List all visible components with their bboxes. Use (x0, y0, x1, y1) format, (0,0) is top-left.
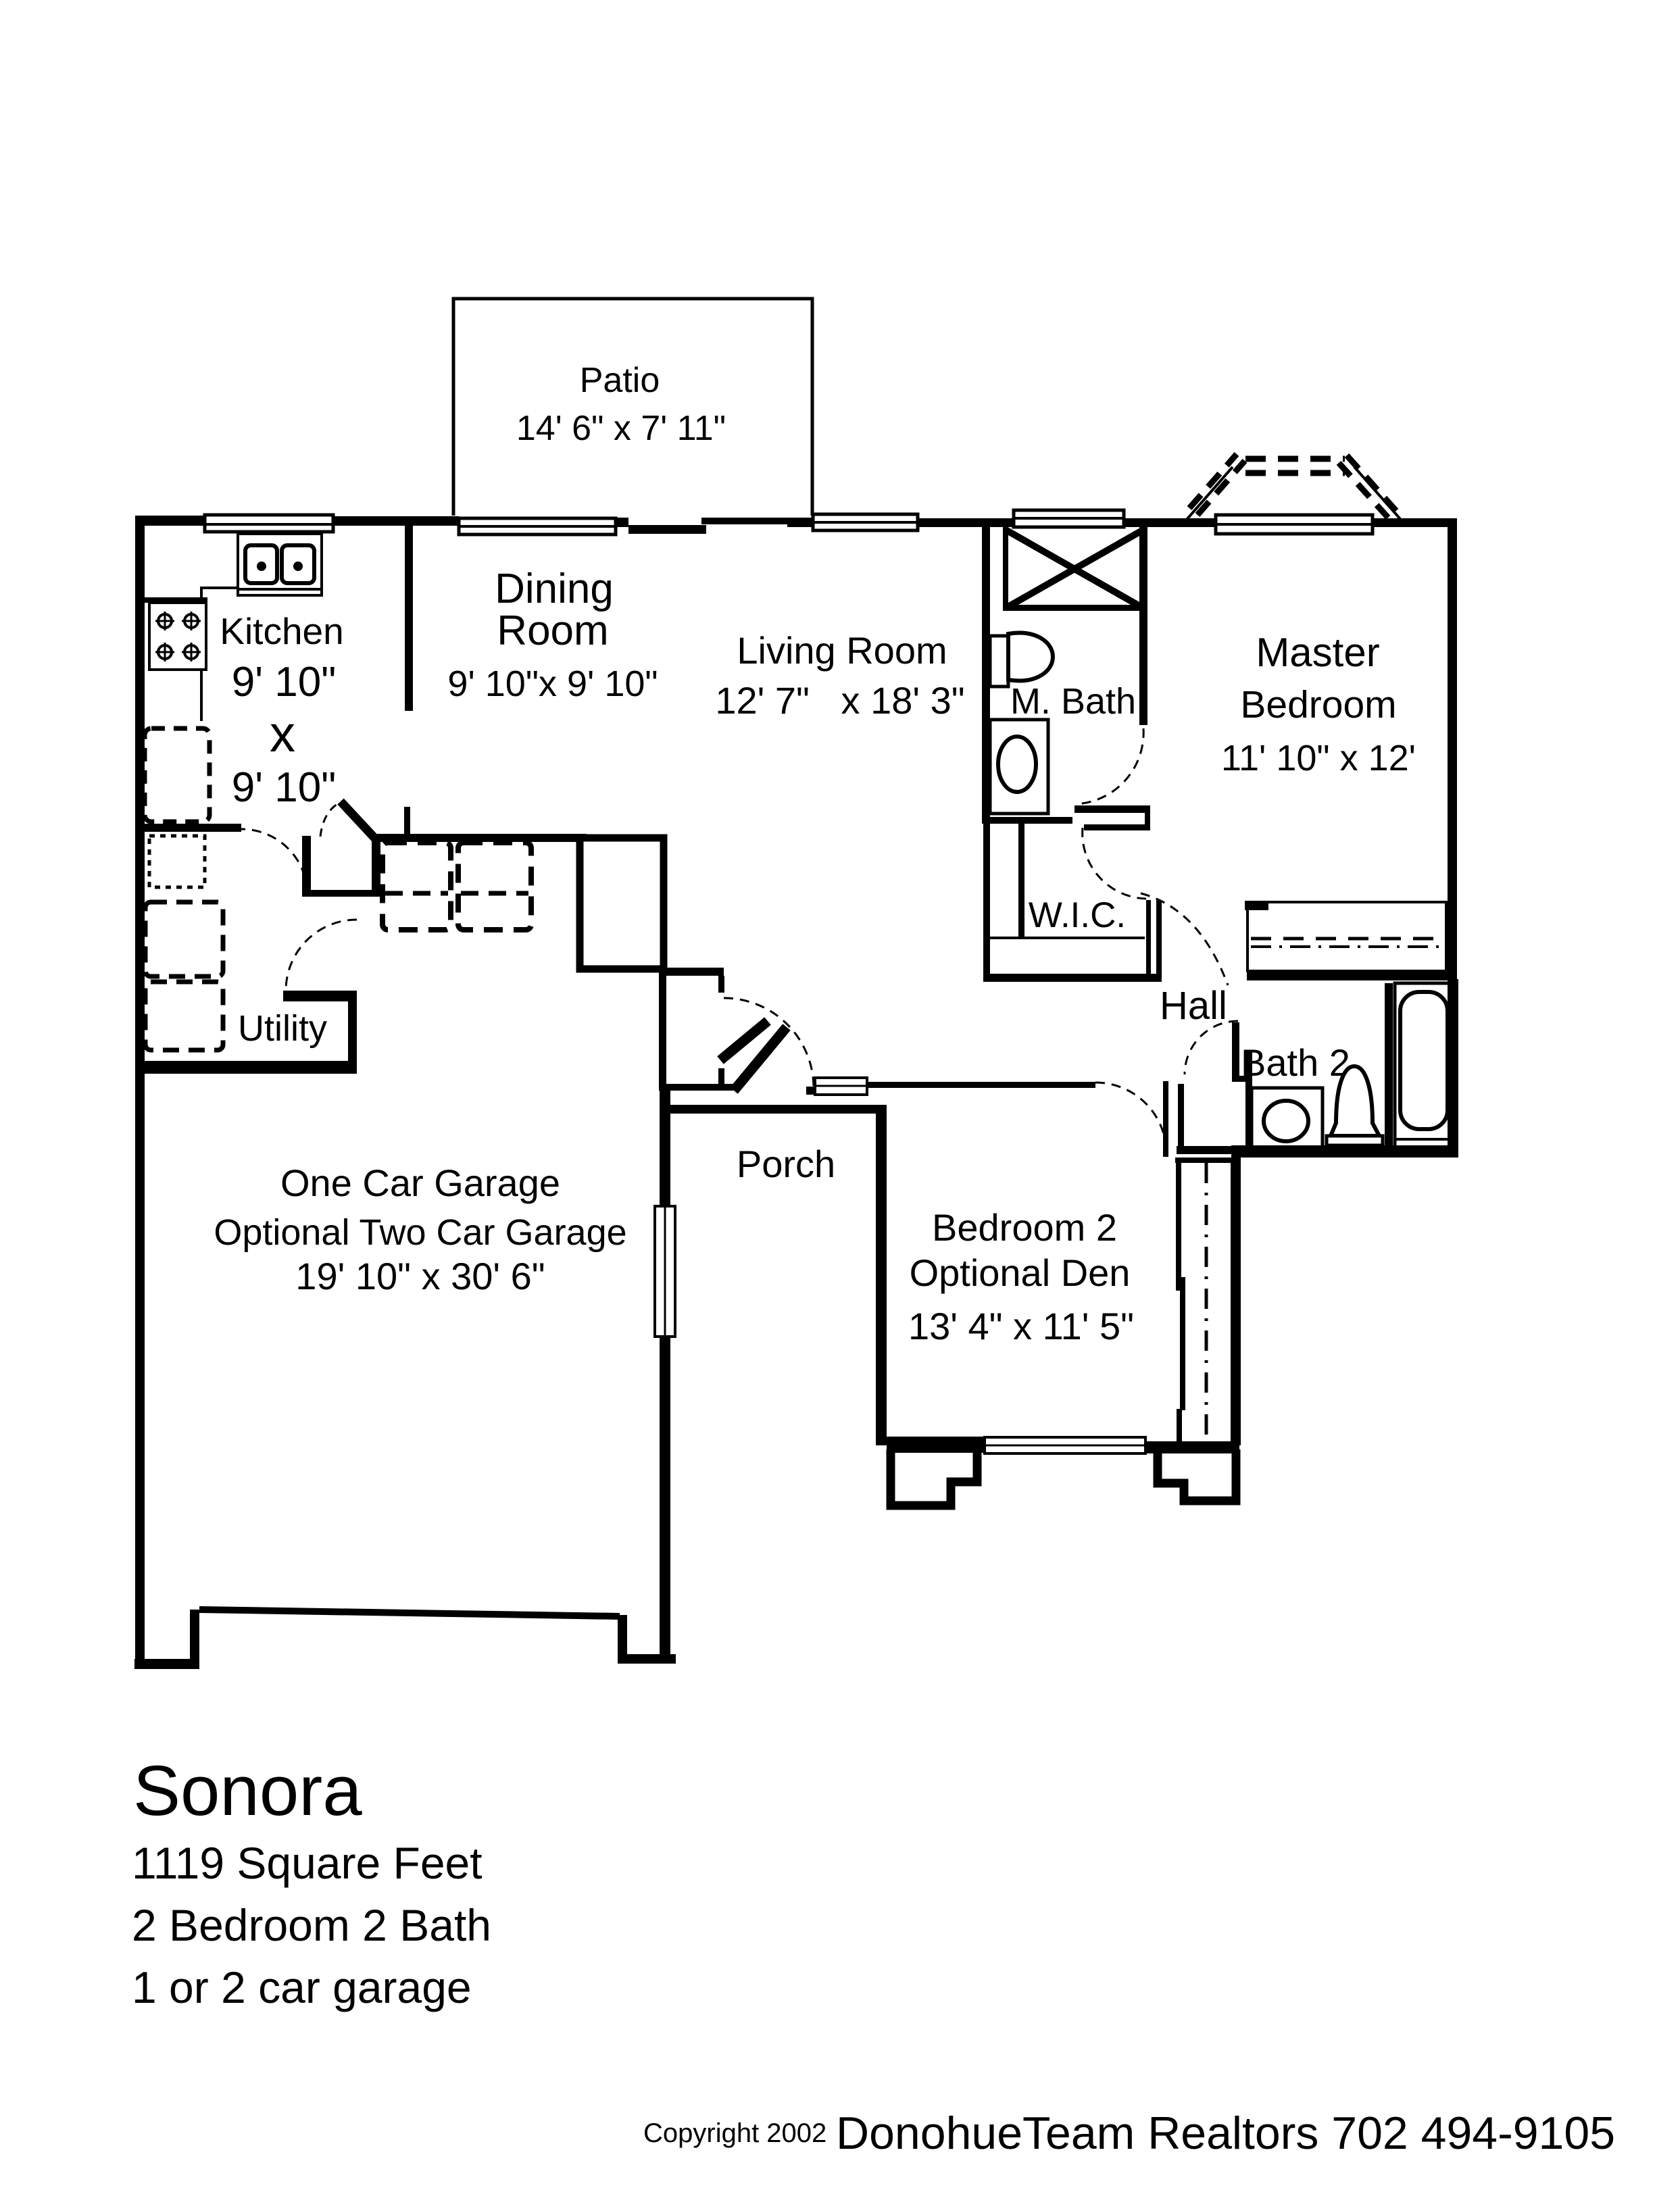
svg-text:M. Bath: M. Bath (1010, 681, 1136, 722)
svg-text:Utility: Utility (238, 1008, 327, 1049)
svg-text:Sonora: Sonora (133, 1751, 362, 1831)
svg-text:1119 Square Feet: 1119 Square Feet (132, 1838, 483, 1888)
svg-text:2 Bedroom 2 Bath: 2 Bedroom 2 Bath (132, 1900, 491, 1950)
svg-text:1 or 2 car garage: 1 or 2 car garage (132, 1962, 472, 2012)
svg-text:9' 10": 9' 10" (232, 659, 337, 705)
svg-text:Master: Master (1256, 630, 1379, 675)
svg-text:Room: Room (497, 607, 608, 654)
svg-text:DonohueTeam Realtors 702 494-9: DonohueTeam Realtors 702 494-9105 (836, 2108, 1615, 2159)
svg-text:Living Room: Living Room (737, 629, 947, 672)
svg-text:12' 7" x 18' 3": 12' 7" x 18' 3" (715, 679, 964, 722)
svg-text:Porch: Porch (737, 1143, 835, 1185)
svg-text:9' 10": 9' 10" (232, 764, 337, 811)
svg-text:Bath 2: Bath 2 (1241, 1041, 1350, 1084)
svg-text:Copyright 2002: Copyright 2002 (643, 2118, 826, 2148)
svg-text:Hall: Hall (1160, 984, 1227, 1028)
svg-text:Bedroom: Bedroom (1240, 683, 1396, 726)
svg-text:W.I.C.: W.I.C. (1029, 895, 1126, 935)
svg-text:Kitchen: Kitchen (220, 610, 343, 652)
svg-text:One Car Garage: One Car Garage (280, 1162, 560, 1204)
svg-text:Dining: Dining (495, 566, 614, 612)
svg-text:Bedroom 2: Bedroom 2 (932, 1206, 1117, 1249)
svg-text:Optional Den: Optional Den (910, 1251, 1131, 1294)
svg-text:Patio: Patio (580, 361, 660, 400)
svg-text:9' 10"x 9' 10": 9' 10"x 9' 10" (447, 664, 658, 704)
svg-text:x: x (270, 705, 295, 763)
svg-text:19' 10" x 30' 6": 19' 10" x 30' 6" (295, 1255, 545, 1297)
svg-text:Optional Two Car Garage: Optional Two Car Garage (214, 1212, 626, 1253)
svg-text:13' 4" x 11' 5": 13' 4" x 11' 5" (908, 1305, 1134, 1347)
svg-text:11' 10" x 12': 11' 10" x 12' (1221, 738, 1416, 778)
svg-text:14' 6" x 7' 11": 14' 6" x 7' 11" (516, 409, 726, 448)
